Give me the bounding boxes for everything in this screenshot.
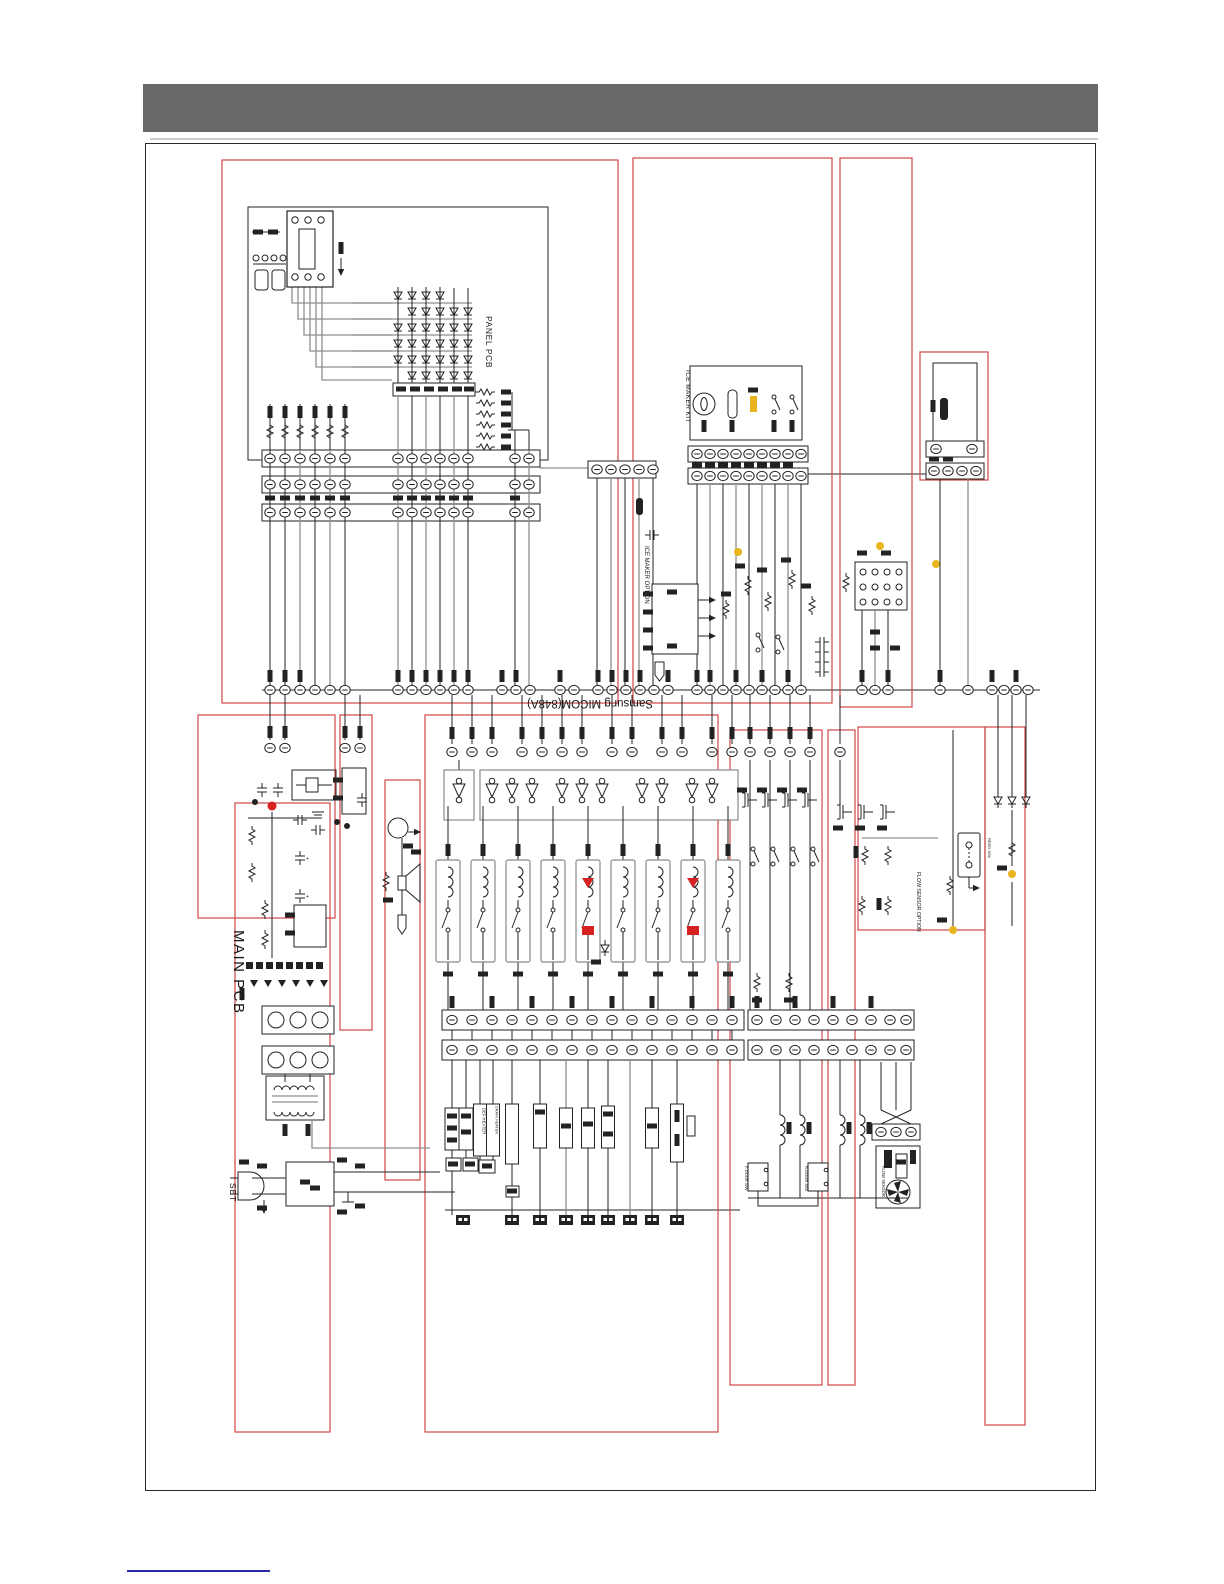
load [646,1108,659,1148]
ice-maker-connectors [688,446,808,685]
rectifier-row [246,962,328,987]
reed-switch: REED S/W [958,833,992,891]
indicator-dot [949,926,957,934]
indicator-dot [1008,870,1016,878]
load-def-heater: DEF HEATER [474,1104,487,1156]
flow-sensor-block: FLOW SENSOR [872,1062,920,1208]
load [560,1108,573,1148]
motor-icon [693,393,715,432]
reed-sw-label: REED S/W [987,838,992,858]
connector-bar [447,1045,737,1054]
relay [681,860,705,962]
relay [611,860,635,962]
load [602,1106,615,1148]
load [582,1108,595,1148]
relay-bank [436,806,740,1010]
buzzer-icon [398,864,420,902]
wires [452,1030,732,1040]
service-manual-page: { "labels": { "panel_pcb": "PANEL PCB", … [0,0,1224,1584]
buzzer-section [383,818,421,934]
set-label: SET [228,1183,238,1202]
flow-sensor-option-column: REED S/W FLOW SENSOR OPTION [854,730,993,934]
wire-labels [265,496,520,501]
flow-sensor-option-label: FLOW SENSOR OPTION [915,872,921,932]
bus-labels [268,670,1019,682]
svg-text:DEF HEATER: DEF HEATER [482,1108,487,1134]
terminal-row [456,1215,684,1225]
segment-diode-bar [393,383,475,396]
pulldown-resistors [267,406,348,441]
transistor-icon [388,818,408,838]
smps-section: + + [240,802,335,1075]
svg-text:F-DOOR S/W: F-DOOR S/W [744,1166,749,1191]
wires [262,287,1040,1210]
load [534,1104,547,1148]
shield-symbol [655,662,664,681]
indicator-dot [876,542,884,550]
relay [646,860,670,962]
ic-chip [643,584,716,654]
relay [471,860,495,962]
fuse-icon [748,388,758,413]
svg-text:+: + [306,894,309,900]
relay [716,860,740,962]
relay [576,860,600,962]
driver-array [444,760,738,820]
svg-text:DRAIN HEATER: DRAIN HEATER [495,1106,499,1134]
connector-bar [752,1045,911,1054]
micom-label: Samsung MICOM(848A) [527,697,653,709]
indicator-dot [932,560,940,568]
fan-icon [886,1180,910,1204]
indicator-dot [734,548,742,556]
connector-bar [262,1046,334,1074]
shield-symbol [398,915,406,934]
relay [506,860,530,962]
indicator-cluster [252,230,286,291]
driver-ic-right [843,542,940,685]
oscillator-section [252,695,336,818]
ice-maker-kit-label: ICE MAKER KIT [684,370,691,423]
main-pcb-label: MAIN PCB [230,930,247,1015]
panel-pcb-label: PANEL PCB [484,316,494,368]
power-input: SET [228,1074,455,1215]
svg-text:+: + [306,856,309,862]
relay [436,860,460,962]
door-switches: F-DOOR S/W R-DOOR S/W [744,1163,828,1191]
wiring-diagram: PANEL PCB ICE MAKER KIT ICE MAKER OPTION [0,0,1224,1584]
switch-icon [772,395,781,432]
door-switch-r: R-DOOR S/W [804,1163,828,1191]
test-point-dot [268,802,277,811]
key-resistor-array [476,389,511,450]
relay [541,860,565,962]
connector-bar [447,1015,737,1024]
load [671,1104,696,1162]
cam-icon [728,390,737,432]
ice-maker-kit-block: ICE MAKER KIT [684,366,802,440]
connector-bank-top [262,396,540,685]
display-module [287,211,344,287]
diode-capsule [636,498,643,515]
svg-text:R-DOOR S/W: R-DOOR S/W [804,1166,809,1191]
connector-bar [262,1006,334,1034]
transformer [266,1074,430,1148]
right-aux-block [926,363,984,685]
switching-column [737,760,895,1010]
connector-bar [752,1015,911,1024]
wire-labels [450,727,813,739]
flow-sensor-label: FLOW SENSOR [881,1166,886,1197]
door-switch-f: F-DOOR S/W [744,1163,768,1191]
switch-icon [790,395,799,432]
output-connector-bars [442,996,914,1060]
load-section: DEF HEATER DRAIN HEATER [445,1060,695,1225]
